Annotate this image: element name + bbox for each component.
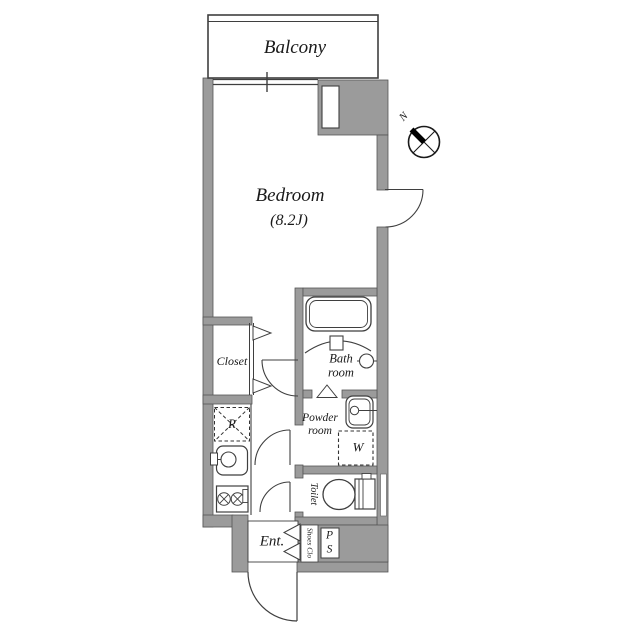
stove <box>217 486 249 512</box>
bedroom-label: Bedroom <box>256 185 325 207</box>
bedroom-size-label: (8.2J) <box>270 212 308 230</box>
shoes-closet-label: Shoes Clo <box>305 528 314 558</box>
right-side-door <box>385 190 423 228</box>
kitchen-sink <box>211 446 248 475</box>
bath-door-curve <box>305 336 371 353</box>
bedroom-door <box>262 360 298 396</box>
bath-entry-marker <box>317 385 337 398</box>
floor-plan-canvas: Balcony Bedroom (8.2J) Closet Bath room … <box>0 0 640 640</box>
powder-room-door <box>255 430 290 465</box>
right-wall-channel <box>381 474 387 516</box>
closet-label: Closet <box>217 355 248 369</box>
floor-plan-drawing <box>0 0 640 640</box>
bathtub <box>306 297 371 331</box>
entrance-door <box>248 572 297 621</box>
bathroom-label: Bath room <box>328 352 354 381</box>
balcony-label: Balcony <box>264 37 326 59</box>
toilet-label: Toilet <box>307 483 319 505</box>
toilet-fixture <box>323 474 375 510</box>
duct-box <box>322 86 339 128</box>
window-sliding <box>213 72 318 92</box>
bath-faucet <box>357 354 377 368</box>
closet-folding-door <box>250 323 272 395</box>
pipe-space-label: P S <box>326 530 333 557</box>
refrigerator-label: R <box>228 417 236 431</box>
washer-label: W <box>353 441 364 456</box>
toilet-door <box>260 482 290 512</box>
compass-icon <box>409 127 440 158</box>
entrance-label: Ent. <box>260 533 285 550</box>
washbasin <box>346 396 377 428</box>
powder-room-label: Powder room <box>302 412 338 438</box>
